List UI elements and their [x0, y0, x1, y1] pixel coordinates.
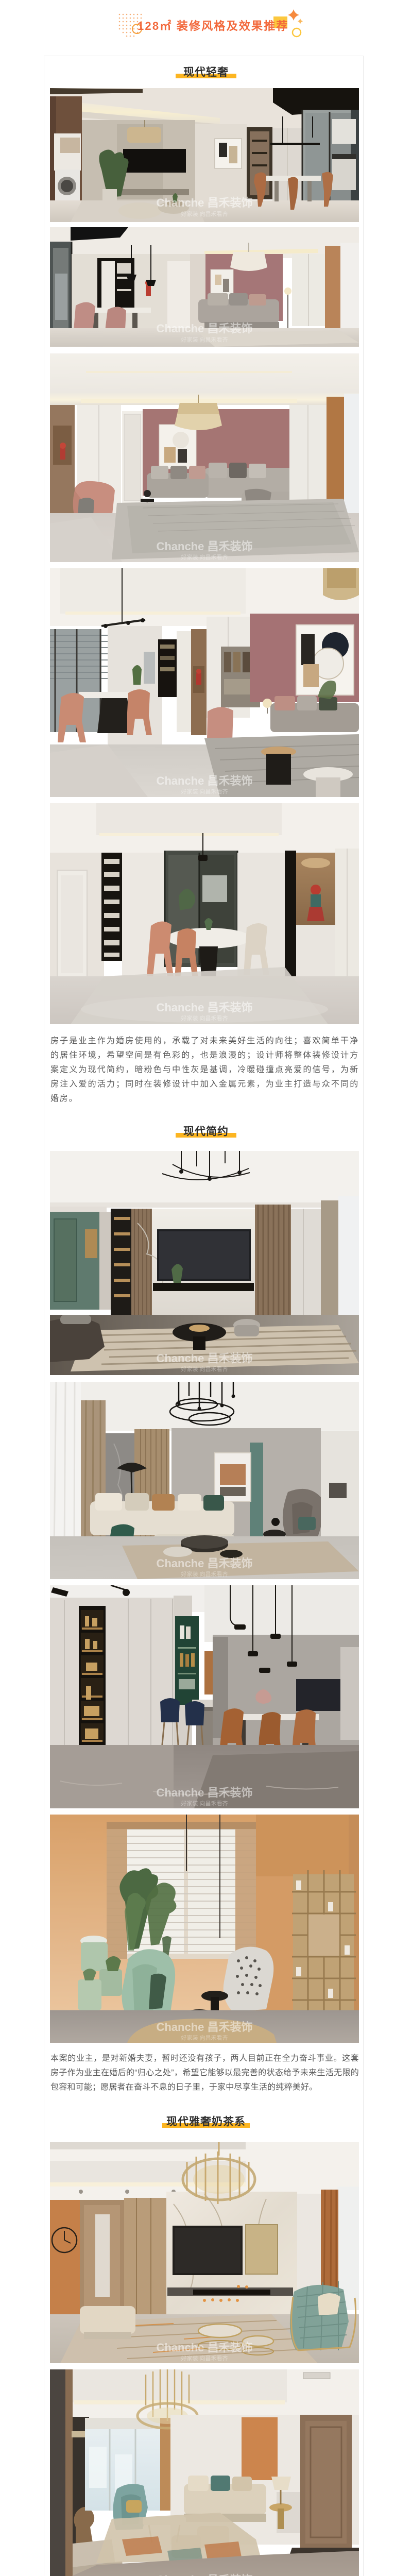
svg-text:好家装 向昌禾看齐: 好家装 向昌禾看齐: [181, 1570, 228, 1578]
svg-text:Chanche 昌禾装饰: Chanche 昌禾装饰: [156, 322, 252, 335]
svg-text:Chanche 昌禾装饰: Chanche 昌禾装饰: [156, 1557, 252, 1570]
svg-text:Chanche 昌禾装饰: Chanche 昌禾装饰: [156, 2341, 252, 2354]
svg-text:好家装 向昌禾看齐: 好家装 向昌禾看齐: [181, 1365, 228, 1372]
svg-text:好家装 向昌禾看齐: 好家装 向昌禾看齐: [181, 553, 228, 561]
svg-text:好家装 向昌禾看齐: 好家装 向昌禾看齐: [181, 210, 228, 217]
svg-text:好家装 向昌禾看齐: 好家装 向昌禾看齐: [181, 2034, 228, 2041]
svg-text:好家装 向昌禾看齐: 好家装 向昌禾看齐: [181, 1014, 228, 1022]
svg-text:Chanche 昌禾装饰: Chanche 昌禾装饰: [156, 540, 252, 553]
svg-text:好家装 向昌禾看齐: 好家装 向昌禾看齐: [181, 788, 228, 795]
svg-text:Chanche 昌禾装饰: Chanche 昌禾装饰: [156, 1001, 252, 1014]
svg-text:Chanche 昌禾装饰: Chanche 昌禾装饰: [156, 2573, 252, 2576]
svg-text:好家装 向昌禾看齐: 好家装 向昌禾看齐: [181, 2354, 228, 2362]
svg-text:Chanche 昌禾装饰: Chanche 昌禾装饰: [156, 196, 252, 209]
svg-text:Chanche 昌禾装饰: Chanche 昌禾装饰: [156, 1786, 252, 1799]
svg-text:Chanche 昌禾装饰: Chanche 昌禾装饰: [156, 1352, 252, 1365]
svg-text:Chanche 昌禾装饰: Chanche 昌禾装饰: [156, 2021, 252, 2033]
svg-text:128㎡ 装修风格及效果推荐: 128㎡ 装修风格及效果推荐: [138, 20, 289, 32]
svg-text:Chanche 昌禾装饰: Chanche 昌禾装饰: [156, 774, 252, 787]
svg-text:好家装 向昌禾看齐: 好家装 向昌禾看齐: [181, 1800, 228, 1807]
svg-text:好家装 向昌禾看齐: 好家装 向昌禾看齐: [181, 336, 228, 343]
